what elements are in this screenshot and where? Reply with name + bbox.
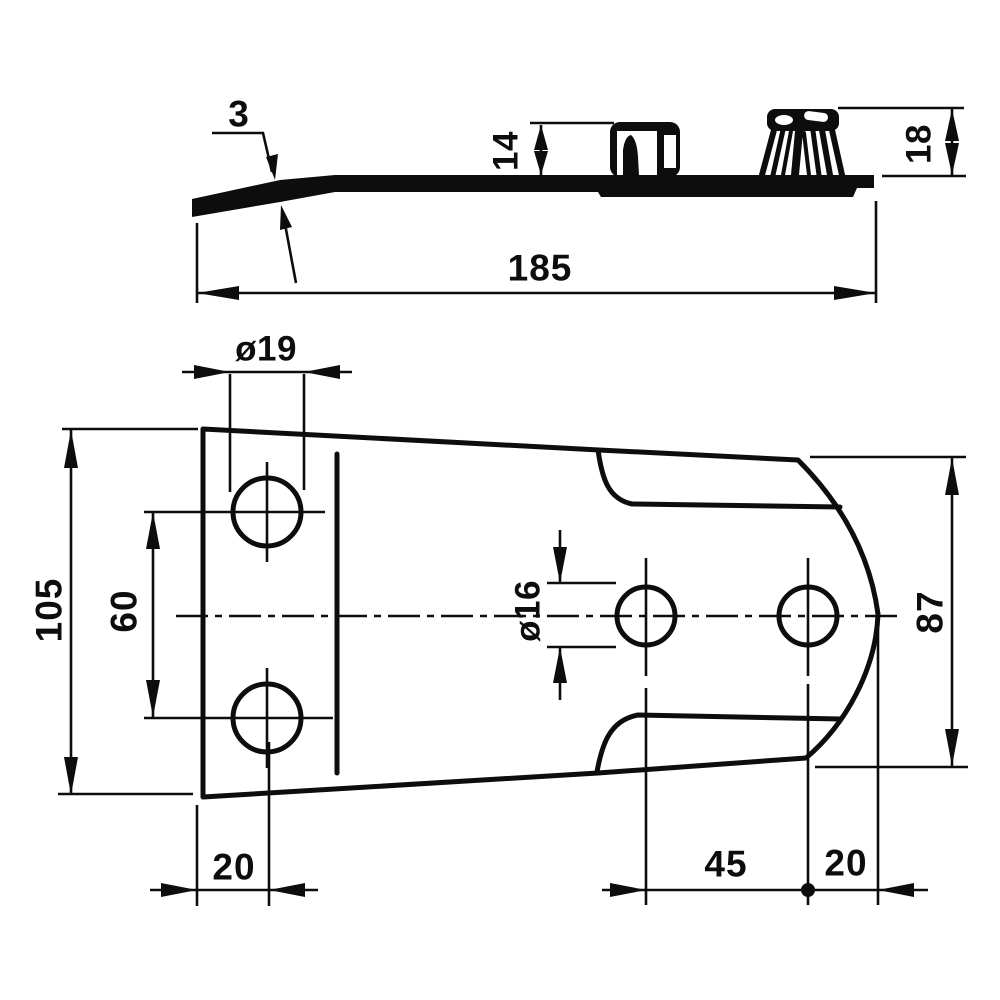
- plan-view: ø19 105 60 ø16: [29, 330, 969, 907]
- spring-clamp-hole-left: [775, 115, 793, 125]
- dim-185-arrow-left: [197, 286, 239, 300]
- dim-105-arrow-down: [64, 757, 78, 795]
- dim-tail-height: 18: [838, 108, 966, 176]
- dim-185-arrow-right: [834, 286, 876, 300]
- dim-blade-thickness-label: 3: [228, 94, 250, 135]
- dim-hole-large-label: ø19: [235, 330, 297, 369]
- dim-left-width-label: 105: [29, 578, 70, 643]
- dim-right-offset-label: 20: [824, 843, 867, 884]
- drawing-page: 3 14 18: [0, 0, 1000, 1000]
- dim-16-arrow-up: [553, 647, 567, 683]
- upper-notch-line: [598, 450, 840, 507]
- dim-shared-origin-dot: [801, 883, 815, 897]
- dim-18-arrow-down: [945, 143, 959, 175]
- dim-right-width-label: 87: [910, 590, 951, 633]
- clamp-block: [610, 122, 680, 177]
- spring-clamp-legs: [762, 130, 842, 175]
- dim-60-arrow-up: [146, 512, 160, 549]
- dim-blade-thickness-leader: [212, 133, 272, 172]
- dim-60-arrow-down: [146, 680, 160, 717]
- dim-19-arrow-left: [194, 365, 230, 379]
- dim-overall-length: 185: [197, 201, 876, 303]
- dim-87-arrow-down: [945, 729, 959, 766]
- dim-14-arrow-up: [534, 125, 548, 150]
- dim-19-arrow-right: [304, 365, 340, 379]
- dim-clamp-height: 14: [487, 123, 615, 175]
- dim-20R-arrow-right: [878, 883, 914, 897]
- dim-left-offset-label: 20: [212, 847, 255, 888]
- dim-105-arrow-up: [64, 430, 78, 468]
- dim-87-arrow-up: [945, 458, 959, 495]
- dim-small-hole-spacing-label: 45: [704, 844, 747, 885]
- dim-blade-thickness-arrow-top: [266, 154, 278, 180]
- dim-overall-length-label: 185: [508, 248, 573, 289]
- dim-left-offset: 20: [150, 742, 318, 906]
- dim-16-arrow-down: [553, 547, 567, 583]
- clamp-block-slot: [664, 135, 676, 168]
- dim-blade-thickness-tail: [285, 224, 296, 283]
- dim-20L-arrow-right: [269, 883, 305, 897]
- dim-hole-small-label: ø16: [509, 580, 548, 642]
- dim-tail-height-label: 18: [900, 124, 939, 164]
- dim-14-arrow-down: [534, 151, 548, 175]
- dim-large-hole-spacing-label: 60: [104, 589, 145, 632]
- technical-drawing: 3 14 18: [0, 0, 1000, 1000]
- dim-clamp-height-label: 14: [487, 131, 526, 171]
- dim-45-arrow-left: [610, 883, 646, 897]
- dim-18-arrow-up: [945, 109, 959, 141]
- blade-profile: [192, 175, 874, 217]
- dim-large-hole-spacing: 60: [104, 512, 161, 717]
- side-view: 3 14 18: [192, 94, 966, 304]
- dim-20L-arrow-left: [161, 883, 197, 897]
- spring-clamp: [762, 109, 842, 175]
